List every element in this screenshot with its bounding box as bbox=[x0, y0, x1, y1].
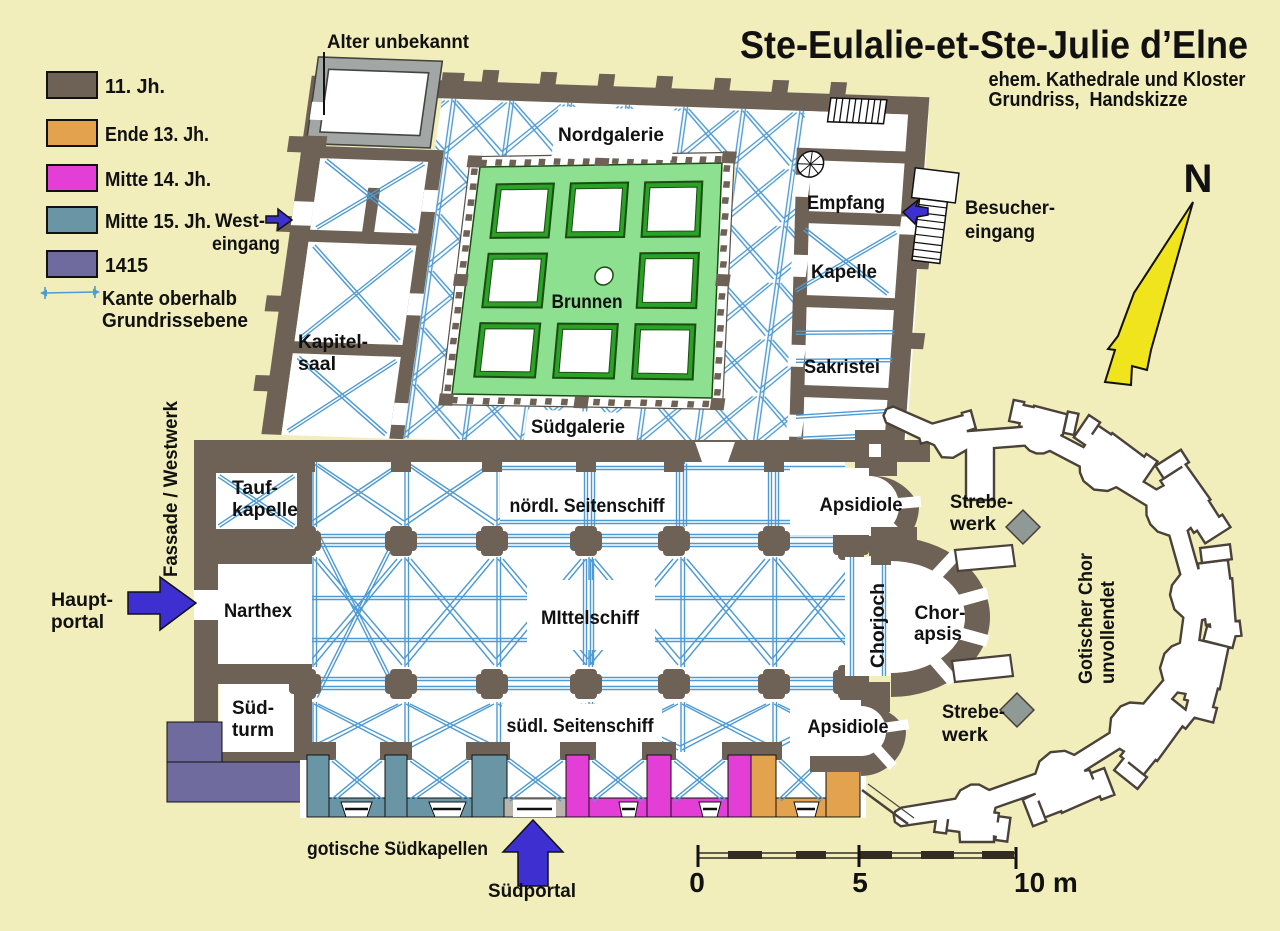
svg-text:Gotischer Chor: Gotischer Chor bbox=[1075, 553, 1097, 684]
svg-text:Sakristei: Sakristei bbox=[804, 356, 880, 378]
svg-text:Brunnen: Brunnen bbox=[552, 291, 623, 313]
svg-text:werk: werk bbox=[949, 513, 996, 535]
svg-text:Haupt-: Haupt- bbox=[51, 589, 113, 611]
svg-text:Ste-Eulalie-et-Ste-Julie d’Eln: Ste-Eulalie-et-Ste-Julie d’Elne bbox=[740, 24, 1248, 67]
svg-text:werk: werk bbox=[941, 724, 988, 746]
svg-text:Mitte 14. Jh.: Mitte 14. Jh. bbox=[105, 169, 211, 191]
svg-text:Apsidiole: Apsidiole bbox=[820, 494, 903, 516]
svg-text:10 m: 10 m bbox=[1014, 867, 1078, 898]
svg-text:Ende 13. Jh.: Ende 13. Jh. bbox=[105, 124, 209, 146]
svg-text:Tauf-: Tauf- bbox=[232, 477, 278, 499]
svg-text:Chor-: Chor- bbox=[915, 602, 966, 624]
svg-text:Kapelle: Kapelle bbox=[811, 261, 877, 283]
svg-text:Kapitel-: Kapitel- bbox=[298, 331, 368, 353]
svg-text:saal: saal bbox=[298, 353, 336, 375]
svg-text:Apsidiole: Apsidiole bbox=[808, 716, 889, 738]
svg-text:Alter unbekannt: Alter unbekannt bbox=[327, 31, 469, 53]
svg-text:Strebe-: Strebe- bbox=[942, 701, 1005, 723]
svg-text:portal: portal bbox=[51, 611, 104, 633]
svg-text:5: 5 bbox=[852, 867, 868, 898]
svg-text:eingang: eingang bbox=[965, 221, 1035, 243]
svg-text:turm: turm bbox=[232, 719, 274, 741]
svg-text:kapelle: kapelle bbox=[232, 499, 298, 521]
svg-text:Grundrissebene: Grundrissebene bbox=[102, 310, 248, 332]
svg-text:Empfang: Empfang bbox=[807, 192, 885, 214]
svg-text:Kante oberhalb: Kante oberhalb bbox=[102, 288, 237, 310]
svg-text:Besucher-: Besucher- bbox=[965, 197, 1055, 219]
svg-text:gotische Südkapellen: gotische Südkapellen bbox=[307, 838, 488, 860]
svg-text:nördl. Seitenschiff: nördl. Seitenschiff bbox=[510, 495, 665, 517]
svg-text:Fassade / Westwerk: Fassade / Westwerk bbox=[160, 401, 182, 577]
svg-text:Strebe-: Strebe- bbox=[950, 491, 1013, 513]
svg-text:11. Jh.: 11. Jh. bbox=[105, 76, 165, 98]
svg-text:Südgalerie: Südgalerie bbox=[531, 416, 625, 438]
svg-text:West-: West- bbox=[215, 210, 265, 232]
svg-text:Nordgalerie: Nordgalerie bbox=[558, 124, 664, 146]
svg-text:Chorjoch: Chorjoch bbox=[867, 583, 889, 668]
svg-text:Grundriss, Handskizze: Grundriss, Handskizze bbox=[989, 89, 1188, 111]
svg-text:unvollendet: unvollendet bbox=[1097, 581, 1119, 684]
svg-text:0: 0 bbox=[689, 867, 705, 898]
svg-text:Süd-: Süd- bbox=[232, 697, 274, 719]
svg-text:eingang: eingang bbox=[212, 233, 280, 255]
svg-text:1415: 1415 bbox=[105, 255, 148, 277]
svg-text:südl. Seitenschiff: südl. Seitenschiff bbox=[507, 715, 654, 737]
svg-text:N: N bbox=[1184, 157, 1213, 201]
svg-text:Narthex: Narthex bbox=[224, 600, 292, 622]
svg-text:MIttelschiff: MIttelschiff bbox=[541, 607, 639, 629]
svg-text:apsis: apsis bbox=[914, 623, 962, 645]
svg-text:Südportal: Südportal bbox=[488, 880, 576, 902]
svg-text:Mitte 15. Jh.: Mitte 15. Jh. bbox=[105, 211, 211, 233]
svg-text:ehem. Kathedrale und Kloster: ehem. Kathedrale und Kloster bbox=[989, 69, 1246, 91]
